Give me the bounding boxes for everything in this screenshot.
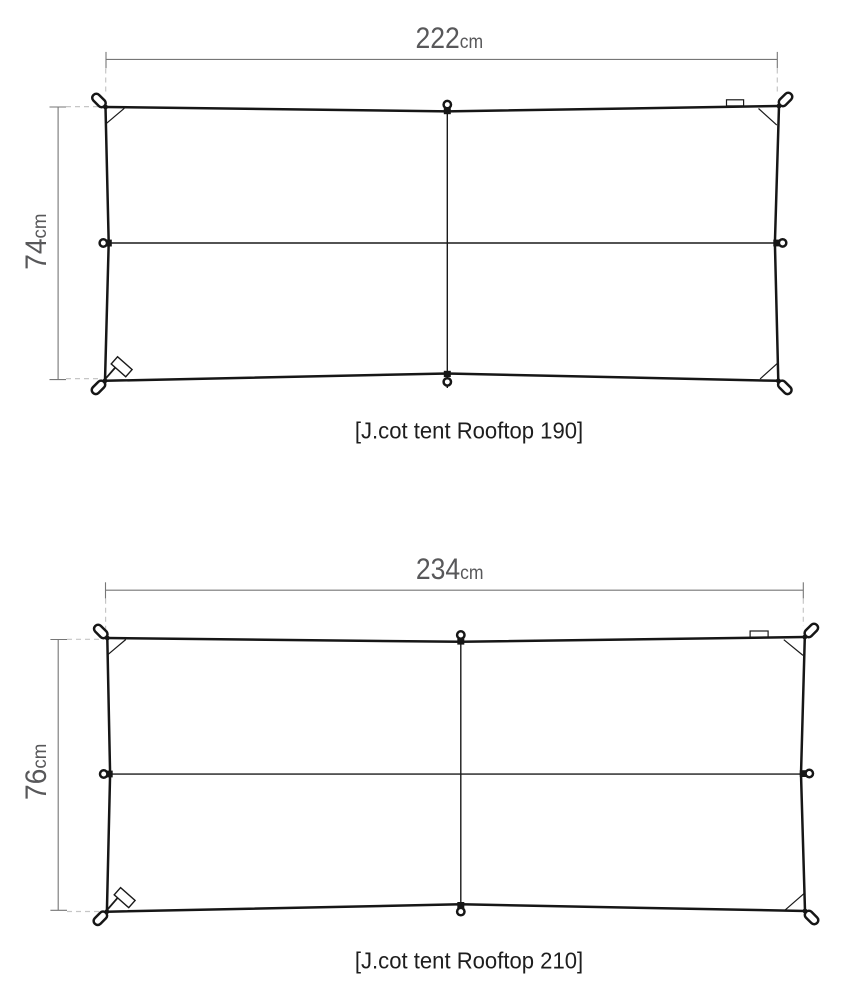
svg-text:222cm: 222cm [415,22,483,55]
svg-text:74cm: 74cm [20,213,53,269]
svg-text:234cm: 234cm [416,553,484,586]
svg-text:76cm: 76cm [20,744,53,800]
svg-text:[J.cot tent Rooftop 210]: [J.cot tent Rooftop 210] [355,947,583,974]
svg-text:[J.cot tent Rooftop 190]: [J.cot tent Rooftop 190] [355,417,583,444]
